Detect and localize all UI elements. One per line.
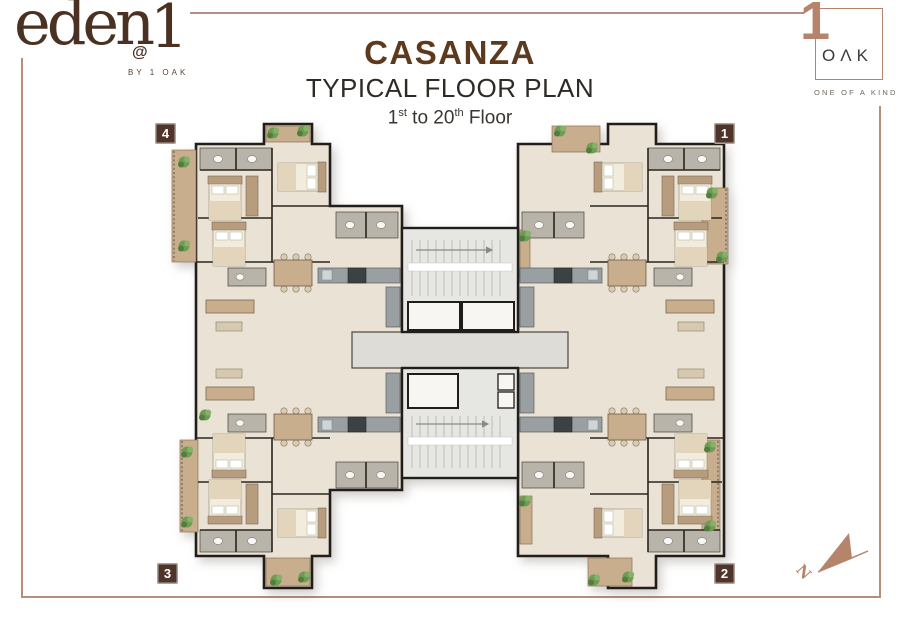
compass-north-label: N	[792, 561, 815, 583]
compass-arrow-filled	[818, 533, 852, 572]
corridor	[352, 332, 568, 368]
duct	[498, 374, 514, 390]
flyer-page: eden 1 @ BY 1 OAK CASANZA TYPICAL FLOOR …	[0, 0, 900, 622]
floor-plan-drawing: N	[0, 0, 900, 622]
staircase-lower	[402, 368, 518, 478]
unit-badge-2: 2	[714, 563, 735, 584]
unit-badge-4: 4	[155, 123, 176, 144]
fire-lift	[408, 374, 458, 408]
unit-badge-1: 1	[714, 123, 735, 144]
north-compass: N	[792, 533, 868, 583]
duct	[498, 392, 514, 408]
lift	[462, 302, 514, 330]
building-plan	[172, 124, 728, 588]
lift	[408, 302, 460, 330]
unit-badge-3: 3	[157, 563, 178, 584]
